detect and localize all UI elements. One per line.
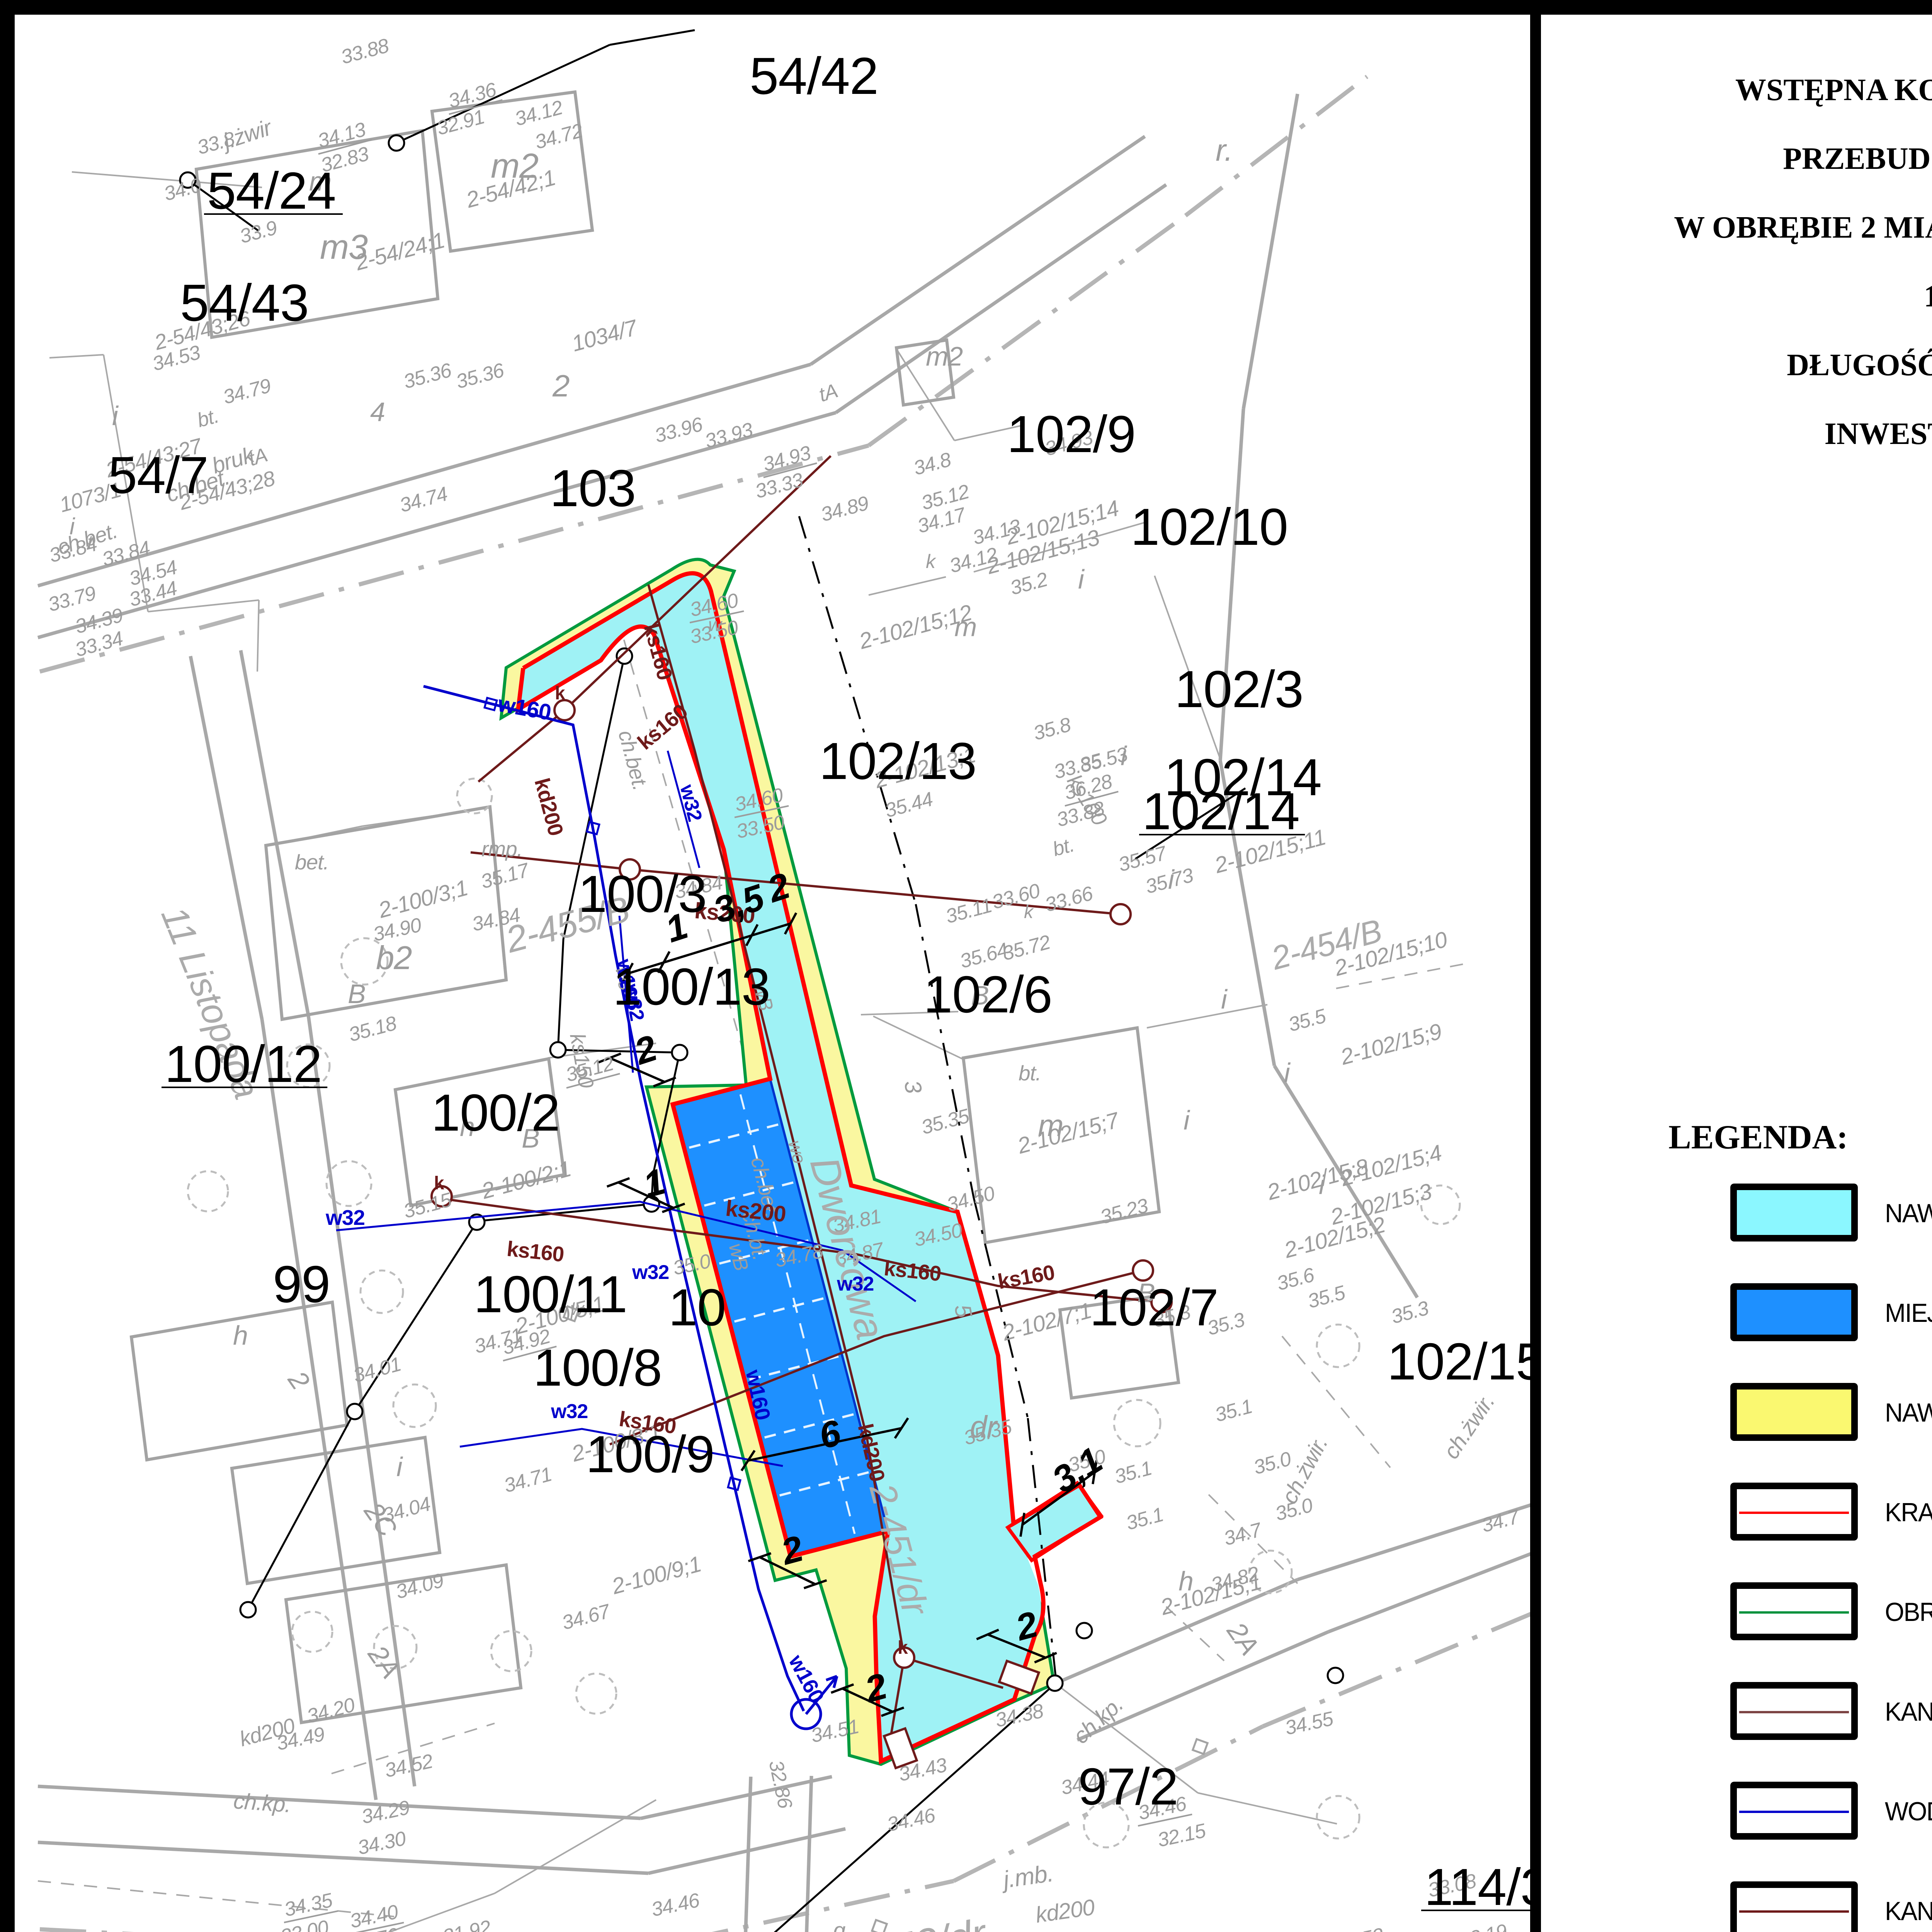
elevation-label: 35.72	[1000, 931, 1053, 965]
utility-label: w32	[325, 1206, 365, 1230]
cadastral-line	[1328, 1551, 1539, 1632]
elevation-label: i	[1221, 984, 1228, 1014]
elevation-label: 35.44	[883, 788, 935, 822]
elevation-label: i	[396, 1452, 403, 1482]
legend-swatch	[1730, 1383, 1858, 1441]
elevation-label: 1034/7	[569, 315, 641, 356]
boundary-node	[550, 1042, 566, 1058]
tree-symbol	[1317, 1325, 1359, 1367]
parcel-number: 102/6	[923, 965, 1052, 1024]
legend-title: LEGENDA:	[1668, 1118, 1848, 1157]
parcel-boundary-line	[558, 939, 563, 1050]
cadastral-line	[38, 1786, 641, 1818]
elevation-label: 35.5	[1286, 1005, 1329, 1036]
legend-label: OBRZEŻE	[1885, 1597, 1932, 1627]
elevation-label: 33.88	[338, 34, 391, 69]
elevation-label: g	[833, 1918, 845, 1932]
utility-label: kd200	[530, 776, 568, 838]
utility-label: k	[555, 683, 565, 704]
elevation-label: 35.0	[1251, 1447, 1294, 1479]
legend-label: WODOCIĄG	[1885, 1796, 1932, 1827]
elevation-label: 34.72	[532, 119, 585, 154]
elevation-label: 2A	[1221, 1616, 1264, 1660]
cadastral-line	[796, 1776, 811, 1932]
title-panel: WSTĘPNA KONCEPCJA ZAKRESU ROBÓTPRZEBUDOW…	[1541, 15, 1932, 1932]
elevation-label: 34.53	[1333, 1924, 1386, 1932]
elevation-label: i	[1184, 1105, 1190, 1135]
tree-symbol	[292, 1612, 332, 1652]
parcel-number: 54/43	[180, 274, 309, 332]
legend-line-sample	[1739, 1910, 1849, 1913]
boundary-node	[389, 135, 404, 151]
cadastral-line	[49, 355, 104, 358]
elevation-label: h	[1179, 1566, 1193, 1596]
elevation-label: kd200	[1034, 1895, 1096, 1928]
elevation-label: i	[1078, 564, 1085, 594]
parcel-boundary-line	[799, 516, 916, 904]
parcel-number: 102/15	[1387, 1332, 1541, 1391]
boundary-node	[617, 648, 632, 664]
elevation-label: h	[233, 1320, 248, 1350]
parcel-number: 99	[273, 1255, 330, 1313]
utility-label: k	[898, 1638, 908, 1658]
parcel-number: 100/12	[165, 1035, 322, 1093]
elevation-label: tA	[816, 379, 840, 406]
legend-line-sample	[1739, 1512, 1849, 1514]
legend-swatch	[1730, 1682, 1858, 1740]
elevation-label: 35.17	[478, 859, 532, 893]
elevation-label: B	[348, 979, 366, 1009]
utility-label: w160	[784, 1651, 829, 1707]
elevation-label: bt.	[1050, 833, 1077, 861]
elevation-label: k	[926, 551, 937, 572]
utility-label: w32	[675, 782, 706, 823]
elevation-label: m3	[320, 228, 368, 267]
parcel-number: 97/2	[1078, 1757, 1178, 1816]
elevation-label: 33.93	[702, 418, 755, 453]
parcel-number: 54/24	[207, 162, 336, 220]
parcel-number: 100/3	[578, 865, 707, 923]
elevation-label: 35.36	[454, 359, 507, 393]
legend-item: OBRZEŻE	[1730, 1582, 1932, 1644]
parcel-number: 102/7	[1090, 1278, 1218, 1337]
elevation-label: bet.	[295, 850, 329, 874]
parcel-number: 100/8	[533, 1338, 662, 1397]
elevation-label: 2-100/9;1	[609, 1551, 704, 1599]
elevation-label: 35.35	[919, 1105, 972, 1139]
elevation-label: 35.1	[1124, 1503, 1166, 1534]
utility-label: ks160	[996, 1260, 1056, 1294]
legend-label: KANALIZACJA SANITARNA	[1885, 1896, 1932, 1926]
parcel-number: 100/13	[613, 957, 770, 1016]
panel-divider	[1530, 15, 1541, 1932]
elevation-label: 33.84	[47, 533, 99, 567]
parcel-number: 100/11	[474, 1265, 627, 1323]
elevation-label: 31.92	[440, 1916, 493, 1932]
elevation-label: 33.60	[990, 879, 1043, 914]
elevation-label: 34.35	[282, 1889, 335, 1921]
utility-label: w32	[632, 1261, 669, 1284]
elevation-label: 33.79	[46, 582, 98, 616]
title-line: WSTĘPNA KONCEPCJA ZAKRESU ROBÓT	[1556, 73, 1932, 108]
tree-symbol	[1317, 1796, 1359, 1838]
legend-label: KANALIZACJA DESZCZOWA	[1885, 1697, 1932, 1727]
parcel-number: 100/9	[586, 1425, 714, 1483]
title-line: DŁUGOŚĆ DROGI OK. 65 METRÓW	[1556, 348, 1932, 383]
cadastral-line	[836, 185, 1166, 413]
boundary-node	[672, 1045, 687, 1060]
legend-label: KRAWĘŻNIK DROGOWY	[1885, 1497, 1932, 1527]
elevation-label: m2	[491, 147, 538, 185]
elevation-label: 2-102/15;9	[1338, 1019, 1445, 1070]
cadastral-line	[1198, 1793, 1337, 1824]
elevation-label: 35.57	[1116, 842, 1170, 876]
elevation-label: rmp.	[481, 837, 522, 861]
utility-label: w32	[551, 1400, 588, 1423]
plan-sheet: 33.8834.3632.9134.1234.722-54/42;12-54/2…	[0, 0, 1932, 1932]
elevation-label: ch.żwir.	[1439, 1389, 1500, 1463]
boundary-node	[240, 1602, 256, 1617]
elevation-label: 34.71	[502, 1463, 554, 1497]
title-line: SKALA 1:500	[1556, 485, 1932, 520]
parcel-boundary-line	[916, 904, 974, 1198]
elevation-label: 35.8	[1031, 713, 1073, 745]
elevation-label: 3	[899, 1078, 927, 1095]
cadastral-line	[811, 136, 1145, 364]
boundary-node	[1077, 1623, 1092, 1638]
legend-item: KRAWĘŻNIK DROGOWY	[1730, 1483, 1932, 1544]
elevation-label: 34.46	[885, 1804, 937, 1836]
tree-symbol	[1114, 1400, 1160, 1446]
cadastral-line	[1282, 1336, 1390, 1468]
tree-symbol	[491, 1631, 531, 1671]
cadastral-line	[38, 1881, 394, 1917]
elevation-label: 34.50	[944, 1182, 997, 1216]
elevation-label: 2	[282, 1365, 315, 1395]
parcel-boundary-line	[610, 30, 695, 45]
elevation-label: i	[112, 401, 119, 431]
elevation-label: j.mb.	[999, 1860, 1055, 1894]
parcel-number: 54/7	[108, 446, 208, 504]
utility-label: w32	[837, 1273, 874, 1295]
legend-swatch	[1730, 1582, 1858, 1640]
legend-line-sample	[1739, 1611, 1849, 1614]
elevation-label: 35.23	[1098, 1194, 1151, 1229]
elevation-label: 34.29	[359, 1796, 412, 1828]
legend-item: KANALIZACJA SANITARNA	[1730, 1881, 1932, 1932]
cadastral-line	[1263, 1611, 1539, 1726]
elevation-label: 32.86	[764, 1758, 796, 1811]
elevation-label: 34.8	[911, 448, 954, 480]
elevation-label: 32.15	[1155, 1820, 1208, 1852]
cadastral-line	[257, 600, 259, 672]
elevation-label: bt.	[1019, 1061, 1041, 1085]
elevation-label: 33.96	[652, 413, 705, 447]
parcel-number: 114/3	[1424, 1858, 1541, 1916]
elevation-label: 34.20	[304, 1694, 357, 1728]
parcel-number: 100/2	[431, 1083, 560, 1142]
elevation-label: 35.2	[1008, 568, 1050, 599]
elevation-label: 34.30	[355, 1827, 408, 1859]
parcel-number: 10	[668, 1278, 726, 1337]
legend-label: NAWIERZCHNIA CHODNIKA/OPASKI	[1885, 1398, 1932, 1428]
tree-symbol	[393, 1384, 436, 1427]
valve-symbol	[1193, 1739, 1207, 1754]
elevation-label: b2	[376, 940, 412, 976]
elevation-label: m2	[926, 341, 963, 371]
elevation-label: 34.01	[351, 1353, 403, 1387]
elevation-label: k	[1024, 902, 1034, 922]
elevation-label: w	[708, 615, 723, 635]
legend-label: NAWIERZCHNIA DROGI	[1885, 1198, 1932, 1228]
boundary-node	[347, 1404, 362, 1419]
elevation-label: 34.04	[380, 1493, 433, 1527]
elevation-label: 2	[552, 369, 570, 403]
tree-symbol	[361, 1270, 403, 1313]
legend-line-sample	[1739, 1811, 1849, 1813]
legend-swatch	[1730, 1184, 1858, 1242]
elevation-label: dr	[970, 1410, 998, 1444]
cadastral-line	[869, 577, 946, 595]
legend-item: WODOCIĄG	[1730, 1782, 1932, 1844]
elevation-label: 2-102/15;7	[1015, 1107, 1123, 1159]
cadastral-line	[1243, 94, 1298, 409]
parcel-number: 54/42	[750, 47, 878, 105]
elevation-label: 35.1	[1112, 1457, 1154, 1488]
title-line: PRZEBUDOWA DROGI POŁOŻONEJ	[1556, 141, 1932, 177]
tree-symbol	[188, 1171, 228, 1211]
parcel-number: 102/13	[819, 732, 976, 790]
parcel-number: 103	[550, 459, 636, 517]
cadastral-line	[1185, 77, 1367, 216]
elevation-label: 4	[370, 397, 385, 427]
elevation-label: 2-100/3;1	[376, 875, 471, 923]
elevation-label: m	[954, 612, 976, 642]
parcel-boundary-line	[248, 1412, 355, 1610]
street-label: 2-453/dr	[828, 1910, 991, 1932]
legend-line-sample	[1739, 1711, 1849, 1713]
dimension-tick	[607, 1171, 629, 1194]
parcel-number: 102/9	[1007, 405, 1136, 463]
legend-item: NAWIERZCHNIA DROGI	[1730, 1184, 1932, 1245]
cadastral-line	[641, 1777, 832, 1818]
legend-swatch	[1730, 1881, 1858, 1932]
elevation-label: 34.7	[1221, 1519, 1265, 1550]
legend-swatch	[1730, 1782, 1858, 1840]
elevation-label: 34.74	[397, 483, 450, 517]
elevation-label: 34.89	[818, 492, 871, 526]
elevation-label: 35.18	[346, 1012, 399, 1046]
elevation-label: 34.79	[221, 374, 273, 408]
elevation-label: ch.kp.	[233, 1788, 292, 1817]
legend-item: MIEJSCA POSTOJOWE	[1730, 1283, 1932, 1345]
boundary-node	[1047, 1675, 1063, 1691]
elevation-label: bt.	[195, 405, 221, 432]
boundary-node	[1328, 1668, 1343, 1683]
legend-item: NAWIERZCHNIA CHODNIKA/OPASKI	[1730, 1383, 1932, 1445]
legend-swatch	[1730, 1483, 1858, 1541]
title-line: INWESTOR: GMINA SĘPOPOL	[1556, 417, 1932, 452]
title-line: W OBRĘBIE 2 MIASTA SĘPOPOL, NA DZIAŁKACH…	[1556, 210, 1932, 245]
utility-label: k	[434, 1173, 444, 1194]
elevation-label: 2-100/2;1	[479, 1156, 574, 1204]
elevation-label: 34.09	[393, 1569, 446, 1603]
elevation-label: 34.46	[649, 1889, 702, 1921]
manhole-symbol	[1111, 904, 1131, 924]
elevation-label: m	[1038, 1108, 1063, 1143]
legend-label: MIEJSCA POSTOJOWE	[1885, 1298, 1932, 1328]
elevation-label: 35.1	[1213, 1395, 1255, 1426]
parcel-number: 102/14	[1142, 782, 1299, 840]
title-line: 100/10, 101, 102/15	[1556, 279, 1932, 314]
legend-item: KANALIZACJA DESZCZOWA	[1730, 1682, 1932, 1744]
elevation-label: 34.55	[1283, 1708, 1335, 1740]
elevation-label: 33.19	[1457, 1920, 1509, 1932]
elevation-label: 34.7	[1479, 1505, 1522, 1537]
elevation-label: 35.36	[401, 359, 454, 393]
elevation-label: 34.52	[383, 1750, 435, 1782]
parcel-number: 102/10	[1131, 498, 1288, 556]
elevation-label: 35.3	[1389, 1297, 1431, 1328]
legend-swatch	[1730, 1283, 1858, 1341]
cadastral-line	[1147, 1005, 1267, 1028]
elevation-label: 33.8	[195, 128, 237, 159]
parcel-number: 102/3	[1175, 660, 1303, 718]
site-plan-map: 33.8834.3632.9134.1234.722-54/42;12-54/2…	[15, 15, 1541, 1932]
elevation-label: i	[1284, 1058, 1291, 1088]
elevation-label: r.	[1216, 133, 1233, 167]
tree-symbol	[576, 1673, 616, 1714]
parcel-boundary-line	[355, 1222, 477, 1412]
elevation-label: 2-102/7;1	[999, 1298, 1094, 1346]
utility-label: ks160	[506, 1236, 565, 1266]
elevation-label: 34.67	[560, 1600, 613, 1634]
